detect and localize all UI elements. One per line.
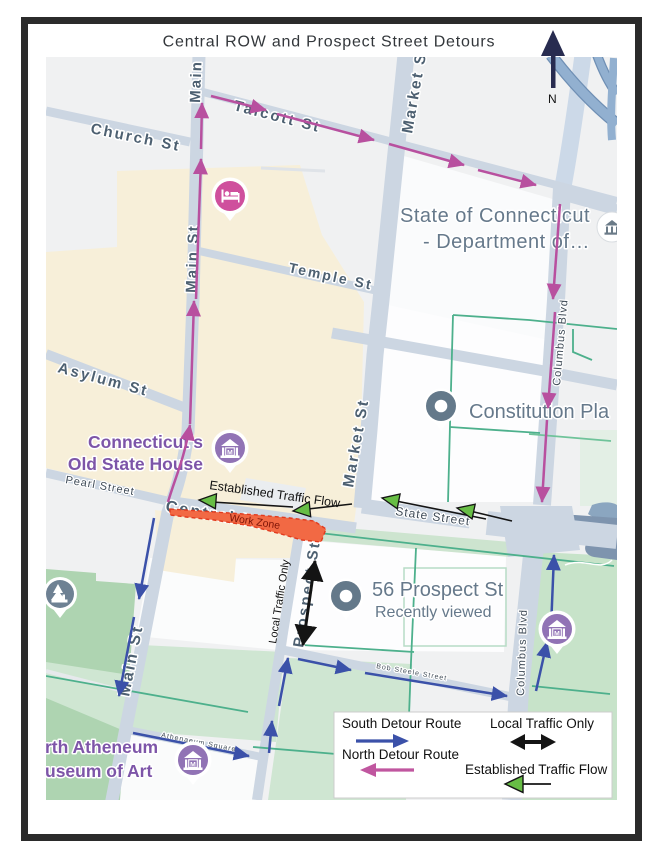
svg-text:M: M — [190, 762, 196, 769]
svg-text:M: M — [227, 450, 233, 457]
svg-text:Established Traffic Flow: Established Traffic Flow — [465, 762, 608, 777]
svg-text:Local Traffic Only: Local Traffic Only — [490, 716, 594, 731]
svg-text:Constitution Pla: Constitution Pla — [469, 401, 610, 423]
svg-text:useum of Art: useum of Art — [45, 761, 152, 781]
svg-text:N: N — [548, 92, 557, 106]
svg-text:Main: Main — [187, 60, 205, 104]
svg-text:Recently viewed: Recently viewed — [375, 604, 492, 621]
svg-text:Central ROW and Prospect Stree: Central ROW and Prospect Street Detours — [163, 34, 496, 51]
svg-text:North Detour Route: North Detour Route — [342, 747, 459, 762]
svg-text:rth Atheneum: rth Atheneum — [45, 737, 158, 757]
svg-text:State of Connecticut: State of Connecticut — [400, 205, 590, 227]
svg-text:M: M — [554, 631, 560, 638]
svg-text:South Detour Route: South Detour Route — [342, 716, 461, 731]
svg-text:- Department of…: - Department of… — [423, 231, 590, 253]
svg-text:56 Prospect St: 56 Prospect St — [372, 579, 504, 601]
